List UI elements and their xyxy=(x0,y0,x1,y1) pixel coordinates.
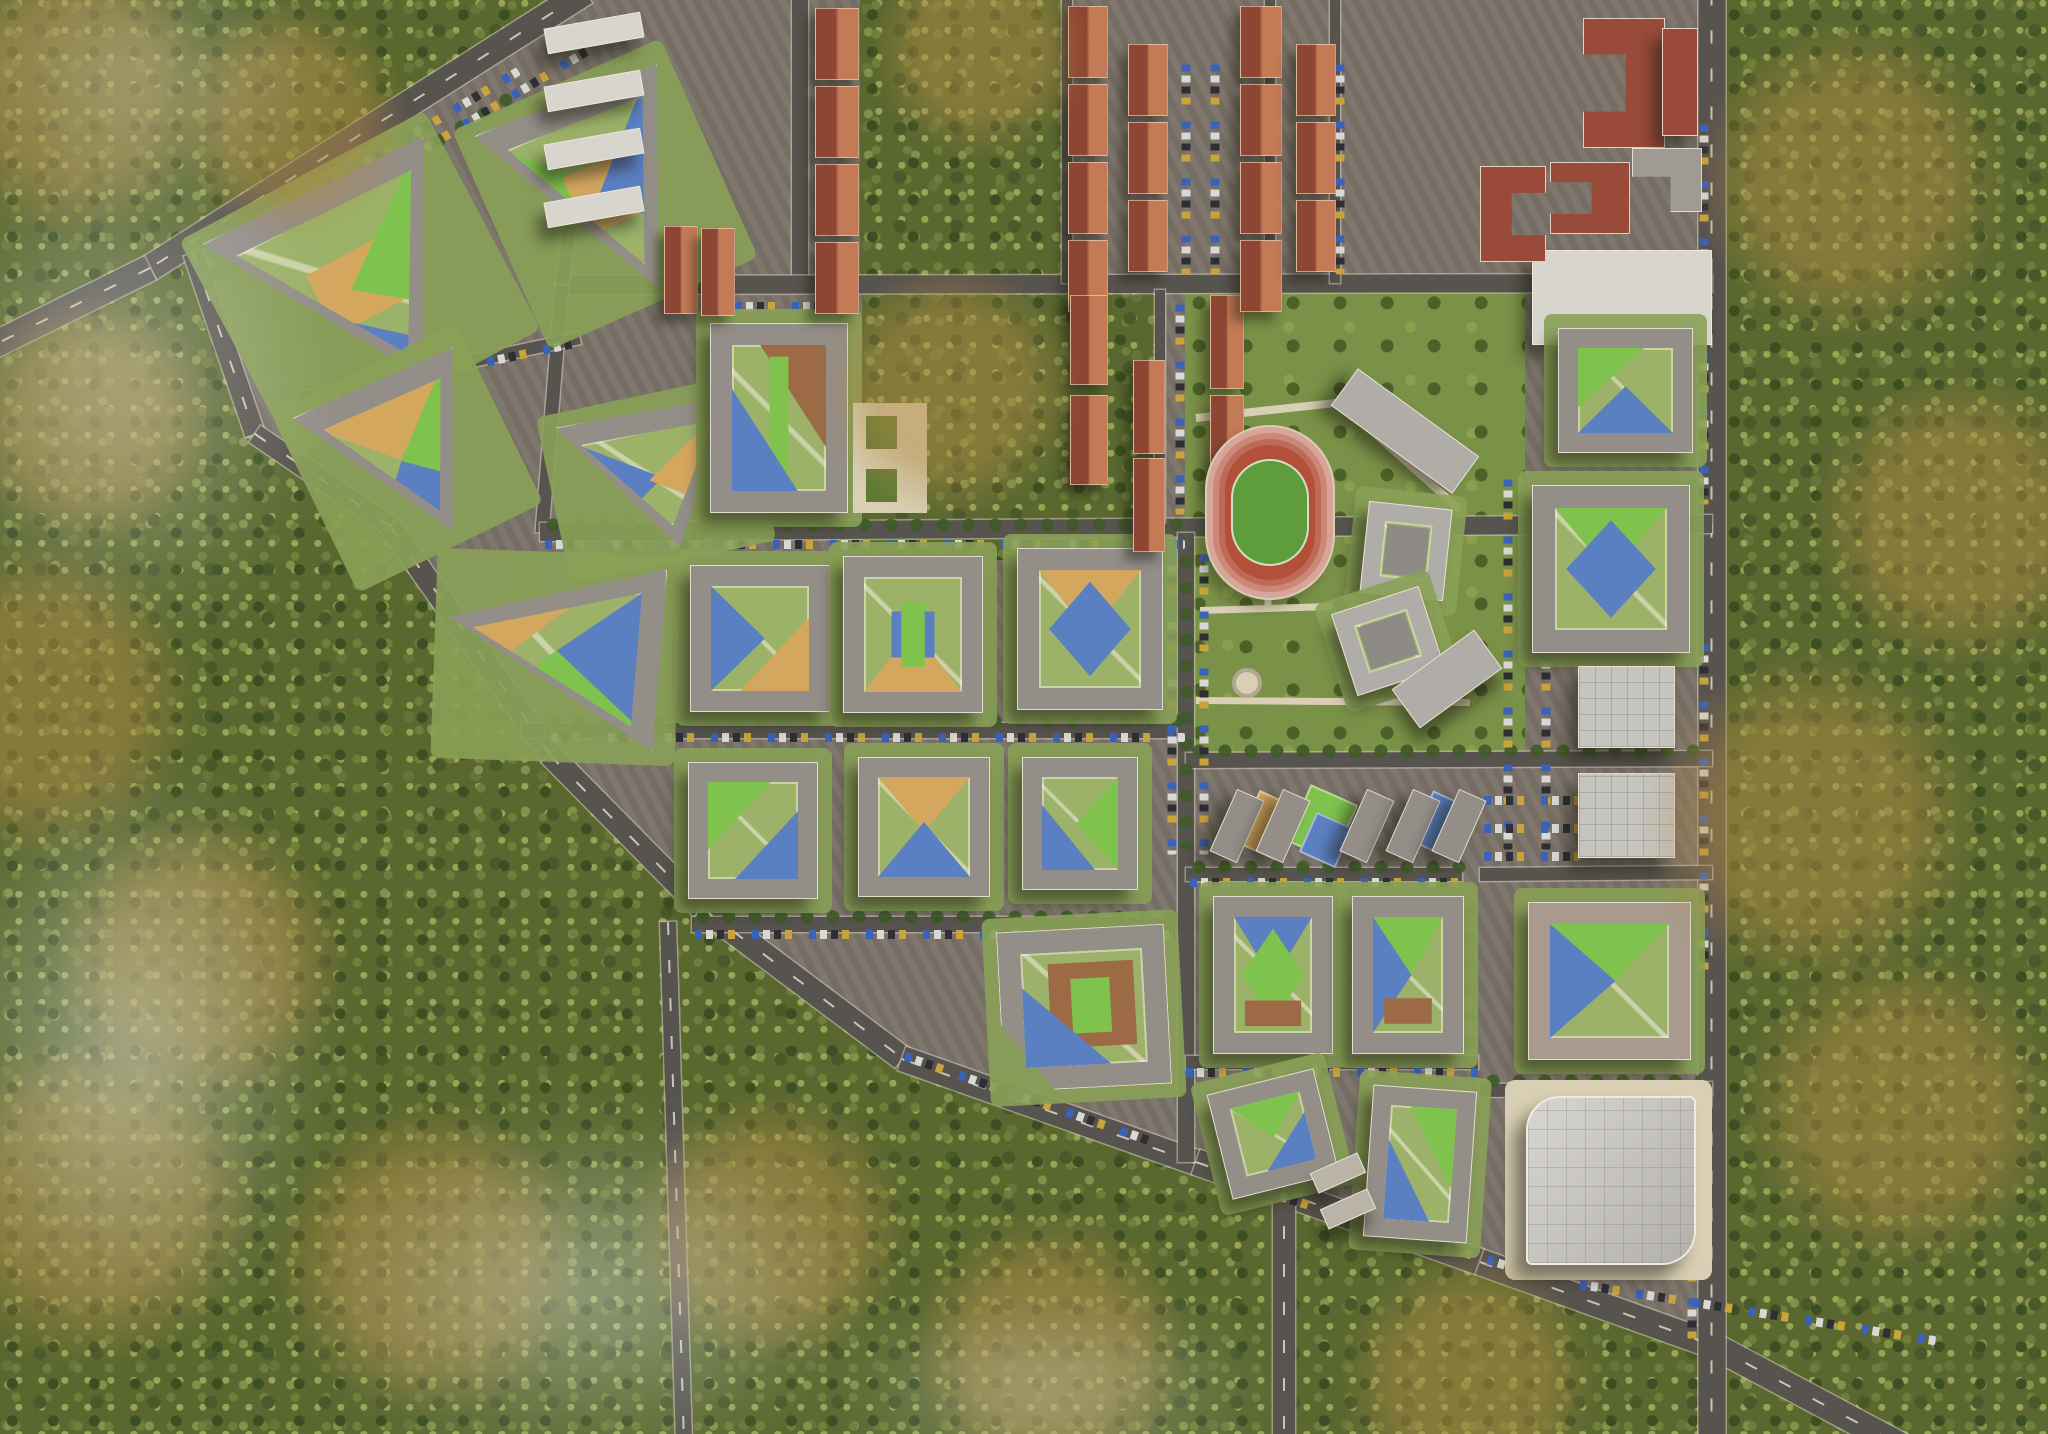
building-roof xyxy=(1583,18,1665,148)
center-block-1 xyxy=(690,565,830,712)
center-block-6 xyxy=(1022,757,1138,890)
townhouse-row xyxy=(701,228,735,316)
building-roof xyxy=(1632,148,1702,212)
round-plaza xyxy=(1232,668,1262,698)
courtyard-playground xyxy=(1020,948,1148,1068)
townhouse-row xyxy=(815,8,859,80)
building-roof xyxy=(1578,666,1675,748)
courtyard-playground xyxy=(878,777,970,877)
courtyard-playground xyxy=(1042,777,1118,870)
courtyard-playground xyxy=(1234,917,1312,1033)
tl-big-triangle xyxy=(445,562,667,751)
center-block-4 xyxy=(688,762,818,899)
building-roof xyxy=(1578,773,1675,858)
courtyard-playground xyxy=(1555,508,1667,630)
bottom-angular-2 xyxy=(1363,1085,1477,1244)
center-block-2 xyxy=(843,556,983,713)
townhouse-row xyxy=(1240,240,1282,312)
townhouse-row xyxy=(1128,122,1168,194)
courtyard-playground xyxy=(1578,348,1673,433)
building-roof xyxy=(1662,28,1698,136)
south-block-2 xyxy=(1352,896,1464,1054)
white-row-slab xyxy=(543,12,644,55)
courtyard-playground xyxy=(711,586,809,691)
townhouse-row xyxy=(1210,295,1244,389)
townhouse-row xyxy=(1070,395,1108,485)
school-building xyxy=(1331,368,1479,493)
townhouse-row xyxy=(815,86,859,158)
townhouse-row xyxy=(1070,295,1108,385)
courtyard-playground xyxy=(1039,570,1141,688)
building-roof xyxy=(1331,368,1479,493)
townhouse-row xyxy=(664,226,698,314)
right-block-3 xyxy=(1528,902,1691,1060)
brick-slab xyxy=(1662,28,1698,136)
townhouse-row xyxy=(815,242,859,314)
building-roof xyxy=(1480,166,1546,262)
townhouse-row xyxy=(1296,122,1336,194)
townhouse-row xyxy=(1068,162,1108,234)
courtyard-playground xyxy=(864,577,962,692)
stadium xyxy=(1205,425,1335,600)
townhouse-row xyxy=(1128,200,1168,272)
courtyard-playground xyxy=(1550,924,1669,1038)
parking-garage-2 xyxy=(1578,773,1675,858)
brick-c-2 xyxy=(1550,162,1630,234)
courtyard-playground xyxy=(1373,917,1443,1033)
townhouse-row xyxy=(1240,84,1282,156)
buildings-layer xyxy=(0,0,2048,1434)
right-block-1 xyxy=(1558,328,1693,453)
townhouse-row xyxy=(1240,6,1282,78)
townhouse-row xyxy=(1240,162,1282,234)
aerial-masterplan-render: aerial-masterplan-render xyxy=(0,0,2048,1434)
right-block-2 xyxy=(1532,485,1690,653)
stadium-field xyxy=(1231,459,1309,566)
courtyard-playground xyxy=(708,782,798,879)
mall-building xyxy=(1526,1096,1696,1265)
south-block-1 xyxy=(1213,896,1333,1054)
townhouse-row xyxy=(1068,84,1108,156)
center-block-5 xyxy=(858,757,990,897)
trapezoid-block xyxy=(996,924,1172,1093)
townhouse-row xyxy=(1068,6,1108,78)
townhouse-row xyxy=(1128,44,1168,116)
courtyard-playground xyxy=(1383,1105,1457,1223)
building-roof xyxy=(543,12,644,55)
building-roof xyxy=(1550,162,1630,234)
townhouse-row xyxy=(815,164,859,236)
plaza-green-square xyxy=(866,469,897,502)
parking-garage-1 xyxy=(1578,666,1675,748)
brick-c-3 xyxy=(1480,166,1546,262)
paved-plaza xyxy=(853,403,927,513)
center-block-3 xyxy=(1017,548,1163,710)
brick-c-1 xyxy=(1583,18,1665,148)
gray-l-block xyxy=(1632,148,1702,212)
townhouse-row xyxy=(1296,44,1336,116)
square-block-north xyxy=(710,323,848,513)
townhouse-row xyxy=(1133,360,1165,454)
townhouse-row xyxy=(1133,458,1165,552)
courtyard-playground xyxy=(732,345,826,491)
plaza-green-square xyxy=(866,416,897,449)
townhouse-row xyxy=(1296,200,1336,272)
